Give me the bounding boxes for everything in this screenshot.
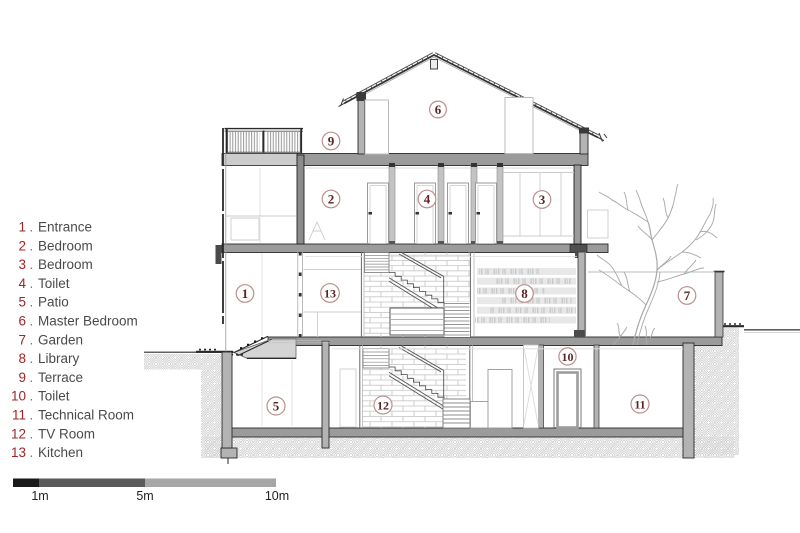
svg-text:1: 1	[242, 286, 249, 301]
svg-text:4: 4	[424, 192, 431, 207]
svg-text:10m: 10m	[265, 489, 289, 503]
svg-text:.: .	[30, 370, 34, 385]
svg-text:.: .	[30, 445, 34, 460]
svg-text:5: 5	[18, 295, 26, 310]
svg-text:Technical Room: Technical Room	[38, 408, 134, 423]
svg-text:.: .	[30, 295, 34, 310]
svg-text:Library: Library	[38, 351, 80, 366]
svg-text:13: 13	[11, 445, 26, 460]
svg-text:8: 8	[521, 286, 528, 301]
svg-text:.: .	[30, 257, 34, 272]
svg-text:Toilet: Toilet	[38, 276, 70, 291]
svg-text:6: 6	[18, 314, 26, 329]
svg-text:6: 6	[435, 102, 442, 117]
svg-text:Master Bedroom: Master Bedroom	[38, 314, 138, 329]
svg-text:11: 11	[12, 408, 26, 423]
svg-text:5m: 5m	[136, 489, 153, 503]
svg-text:.: .	[30, 238, 34, 253]
svg-text:12: 12	[377, 398, 389, 412]
svg-text:1: 1	[18, 220, 26, 235]
svg-text:3: 3	[18, 257, 26, 272]
svg-text:TV Room: TV Room	[38, 426, 95, 441]
svg-text:9: 9	[18, 370, 26, 385]
svg-text:4: 4	[18, 276, 26, 291]
svg-text:5: 5	[273, 399, 280, 414]
svg-text:Terrace: Terrace	[38, 370, 83, 385]
svg-text:1m: 1m	[31, 489, 48, 503]
svg-text:.: .	[30, 351, 34, 366]
svg-text:.: .	[30, 426, 34, 441]
svg-text:Patio: Patio	[38, 295, 69, 310]
svg-text:Garden: Garden	[38, 332, 83, 347]
svg-text:7: 7	[684, 288, 691, 303]
svg-text:3: 3	[539, 192, 546, 207]
svg-text:Toilet: Toilet	[38, 389, 70, 404]
svg-text:.: .	[30, 276, 34, 291]
svg-text:Bedroom: Bedroom	[38, 257, 93, 272]
svg-text:9: 9	[328, 134, 335, 149]
svg-text:.: .	[30, 408, 34, 423]
svg-text:8: 8	[18, 351, 26, 366]
svg-text:11: 11	[634, 397, 645, 411]
svg-text:2: 2	[18, 238, 26, 253]
svg-text:12: 12	[11, 426, 26, 441]
svg-text:.: .	[30, 332, 34, 347]
svg-text:.: .	[30, 220, 34, 235]
svg-text:Bedroom: Bedroom	[38, 238, 93, 253]
svg-text:10: 10	[562, 350, 574, 364]
svg-text:7: 7	[18, 332, 26, 347]
svg-text:Kitchen: Kitchen	[38, 445, 83, 460]
svg-text:Entrance: Entrance	[38, 220, 92, 235]
svg-text:2: 2	[328, 192, 335, 207]
svg-text:10: 10	[11, 389, 26, 404]
svg-text:.: .	[30, 314, 34, 329]
svg-text:.: .	[30, 389, 34, 404]
svg-text:13: 13	[324, 286, 336, 300]
